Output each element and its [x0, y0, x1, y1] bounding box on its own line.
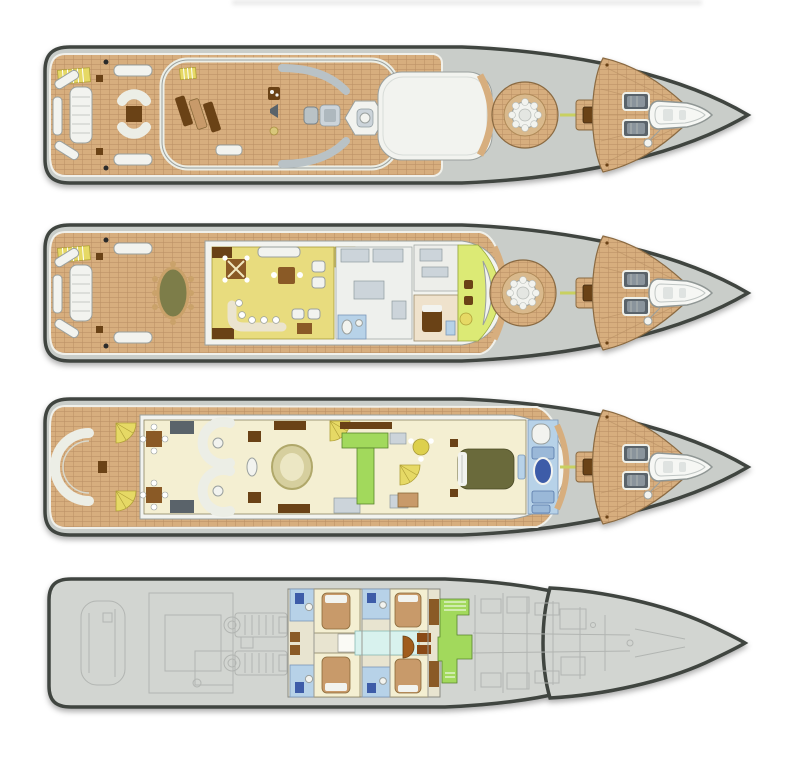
hardtop-roof	[378, 72, 492, 160]
game-table	[222, 255, 249, 282]
master-bathroom	[528, 420, 558, 514]
helm-pod	[304, 105, 340, 126]
deck-plans-canvas	[0, 0, 802, 768]
deck-main	[45, 399, 748, 535]
pantry	[336, 247, 412, 339]
guest-cabin-zone	[288, 589, 440, 697]
bow-hull-section	[543, 588, 745, 698]
sofa	[258, 247, 300, 257]
chart-room	[414, 245, 458, 291]
sun-lounger-platform	[162, 60, 397, 168]
day-head	[338, 315, 366, 339]
bathtub	[532, 424, 550, 444]
captain-cabin	[414, 295, 458, 341]
deck-lower	[49, 579, 745, 707]
deck-sun	[45, 47, 748, 183]
spa-tub	[534, 458, 552, 484]
day-head	[334, 498, 360, 513]
deck-plans-figure	[0, 0, 802, 768]
galley-counter-t	[342, 433, 388, 448]
deck-bridge	[45, 225, 748, 361]
skylounge	[212, 247, 334, 339]
